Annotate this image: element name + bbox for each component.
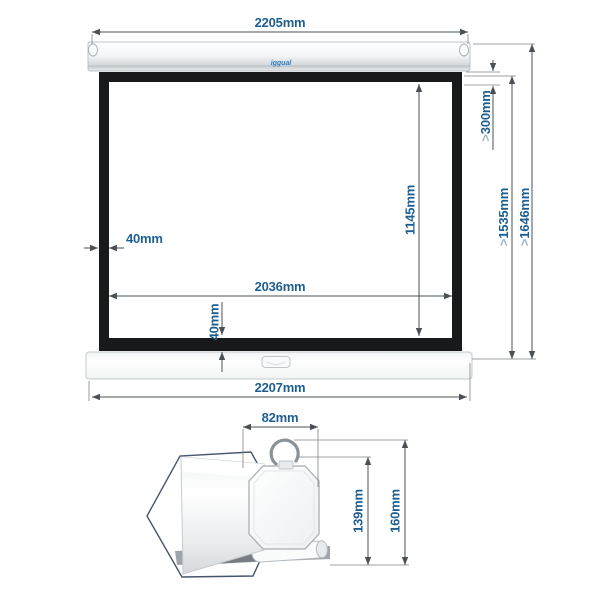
ring-mount	[279, 461, 293, 469]
dim-value: 300mm	[478, 90, 493, 134]
dim-bottom-border-label: 40mm	[207, 304, 222, 341]
casing-endcap-face	[249, 466, 319, 549]
front-view: iggual 2205mm 2036mm 1145mm 40m	[84, 15, 536, 401]
right-hanging-ring-icon	[460, 44, 469, 56]
dim-viewing-width-label: 2036mm	[255, 279, 306, 294]
dim-side-border-label: 40mm	[126, 231, 163, 246]
dim-top-width: 2205mm	[92, 15, 468, 44]
dim-case-width-label: 82mm	[262, 410, 299, 425]
brand-logo: iggual	[271, 60, 293, 67]
casing-detail-view: 82mm 139mm 160mm	[147, 410, 409, 577]
dim-black-drop: >300mm	[478, 60, 494, 150]
dim-bottom-width-label: 2207mm	[255, 380, 306, 395]
hanging-ring-icon	[271, 440, 298, 464]
left-hanging-ring-icon	[89, 44, 98, 56]
dim-value: 1535mm	[496, 188, 511, 239]
dim-viewing-height-label: 1145mm	[403, 185, 418, 235]
pull-handle	[262, 357, 290, 368]
dim-total-height-label: >1646mm	[517, 188, 532, 246]
dim-fabric-height-label: >1535mm	[496, 188, 511, 246]
dim-fabric-height: >1535mm	[496, 76, 513, 359]
dim-top-width-label: 2205mm	[255, 15, 306, 30]
diagram-canvas: iggual 2205mm 2036mm 1145mm 40m	[0, 0, 600, 600]
dim-value: 1646mm	[517, 188, 532, 239]
dim-black-drop-label: >300mm	[478, 90, 493, 141]
dim-case-height-label: 139mm	[351, 489, 366, 533]
dim-detail-total-height-label: 160mm	[388, 489, 403, 533]
projector-screen-dimension-diagram: iggual 2205mm 2036mm 1145mm 40m	[0, 0, 600, 600]
screen-viewing-area	[109, 82, 452, 338]
dim-total-height: >1646mm	[517, 44, 533, 359]
